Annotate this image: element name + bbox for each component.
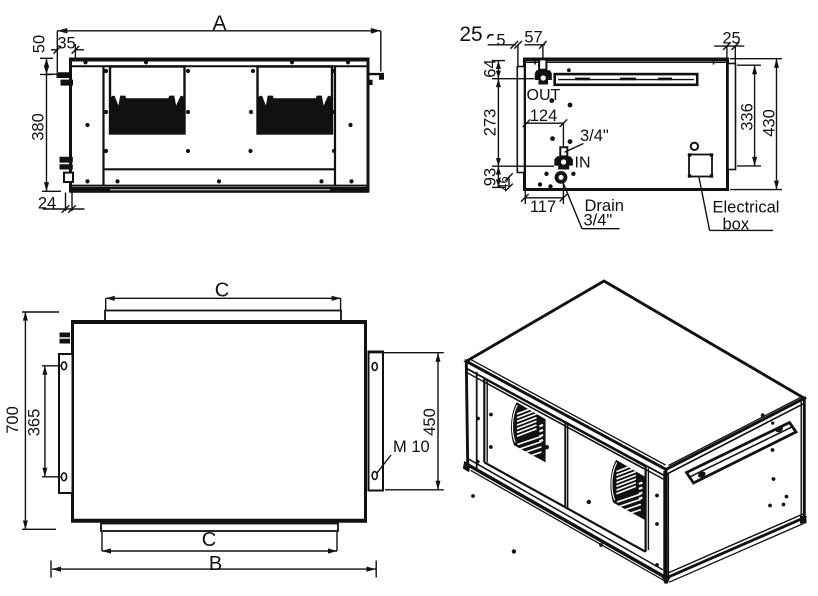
svg-text:117: 117 [530, 198, 556, 216]
svg-text:50: 50 [30, 35, 48, 53]
svg-text:3/4": 3/4" [584, 212, 613, 230]
svg-text:124: 124 [530, 107, 558, 125]
svg-text:273: 273 [481, 109, 499, 137]
svg-text:450: 450 [421, 408, 439, 436]
svg-text:365: 365 [25, 409, 43, 437]
svg-text:336: 336 [738, 103, 756, 131]
svg-text:A: A [212, 12, 226, 35]
svg-text:700: 700 [4, 406, 22, 434]
svg-text:M 10: M 10 [393, 438, 430, 456]
svg-text:24: 24 [38, 195, 56, 213]
svg-text:box: box [723, 216, 750, 234]
svg-text:430: 430 [760, 109, 778, 137]
svg-text:C: C [202, 529, 216, 551]
svg-text:380: 380 [29, 113, 47, 141]
svg-text:5: 5 [496, 32, 505, 50]
svg-text:Electrical: Electrical [713, 199, 780, 217]
svg-text:57: 57 [524, 29, 542, 47]
svg-text:IN: IN [575, 155, 591, 172]
svg-text:B: B [209, 553, 222, 575]
svg-text:OUT: OUT [527, 87, 561, 104]
svg-text:3/4": 3/4" [580, 127, 609, 145]
svg-text:25: 25 [722, 30, 740, 48]
svg-text:25: 25 [459, 23, 482, 46]
svg-text:35: 35 [57, 35, 75, 53]
